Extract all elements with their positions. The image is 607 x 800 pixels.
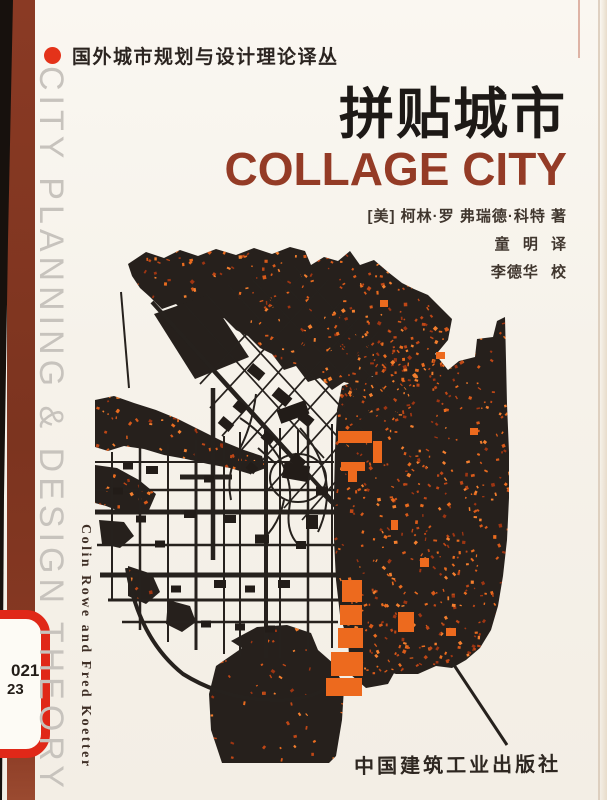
series-header: 国外城市规划与设计理论译丛 [44, 42, 339, 69]
red-dot-icon [44, 47, 61, 64]
spine-series-title: CITY PLANNING & DESIGN THEORY [31, 66, 70, 793]
scan-crease-top [578, 0, 580, 58]
side-author-names: Colin Rowe and Fred Koetter [77, 524, 93, 769]
collage-city-map-art [90, 244, 514, 766]
title-chinese: 拼贴城市 [225, 86, 567, 144]
title-block: 拼贴城市 COLLAGE CITY [美] 柯林·罗 弗瑞德·科特 著 童 明 … [225, 86, 567, 282]
series-label: 国外城市规划与设计理论译丛 [72, 42, 339, 69]
map-black-masses [95, 247, 509, 763]
translator-credit: 童 明 译 [225, 233, 567, 254]
figure-ground-city-map [90, 244, 514, 766]
publisher-imprint: 中国建筑工业出版社 [354, 748, 561, 779]
book-cover: CITY PLANNING & DESIGN THEORY Colin Rowe… [0, 0, 607, 800]
scan-edge-right [600, 0, 607, 800]
title-english: COLLAGE CITY [225, 146, 567, 192]
proofreader-credit: 李德华 校 [225, 261, 567, 282]
author-byline: [美] 柯林·罗 弗瑞德·科特 著 [225, 205, 567, 226]
